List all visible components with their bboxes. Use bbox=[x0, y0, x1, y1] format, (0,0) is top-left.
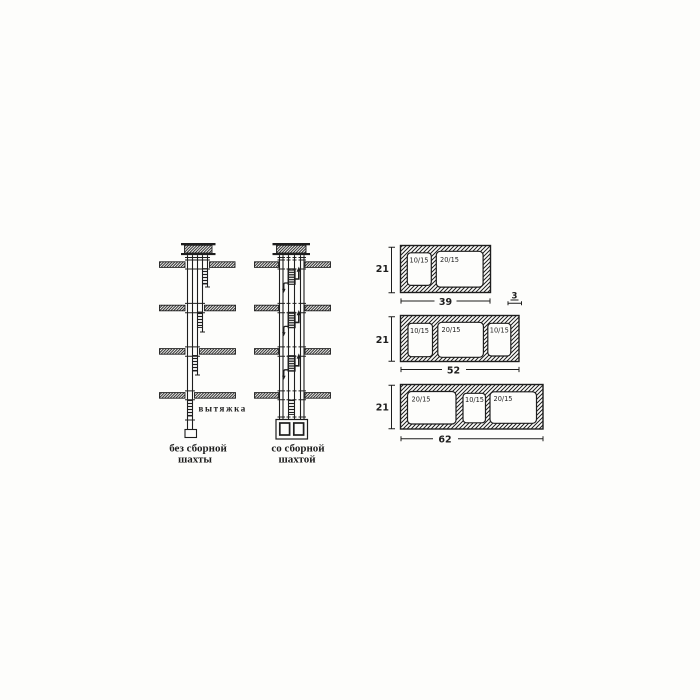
wall-thickness-dimension: 3 bbox=[508, 292, 522, 306]
width-dim-label: 39 bbox=[439, 297, 452, 308]
exhaust-outlet-box bbox=[185, 430, 197, 438]
cell-size-label: 20/15 bbox=[440, 256, 459, 264]
height-dim-label: 21 bbox=[376, 403, 389, 414]
height-dim-label: 21 bbox=[376, 264, 389, 275]
height-dimension bbox=[389, 385, 396, 428]
height-dimension bbox=[389, 317, 396, 361]
caption-without-line2: шахты bbox=[178, 454, 212, 466]
base-block-section bbox=[276, 420, 308, 440]
shaft-cap bbox=[273, 243, 311, 255]
ventilation-shaft-figure: вытяжка без сборной шахты bbox=[0, 0, 700, 700]
shaft-cap bbox=[181, 243, 216, 255]
cell-size-label: 20/15 bbox=[412, 396, 431, 404]
width-dimension bbox=[401, 436, 543, 441]
vent-block-section-2: 10/15 20/15 10/15 21 52 bbox=[376, 316, 519, 377]
shaft-section-with-collector bbox=[255, 243, 331, 439]
cell-size-label: 10/15 bbox=[410, 256, 429, 264]
exhaust-label: вытяжка bbox=[199, 404, 247, 414]
vent-block-section-3: 20/15 10/15 20/15 21 62 bbox=[376, 385, 543, 446]
caption-with-line2: шахтой bbox=[278, 454, 316, 466]
height-dimension bbox=[389, 247, 396, 292]
vent-block-section-1: 10/15 20/15 21 39 3 bbox=[376, 246, 522, 308]
width-dim-label: 52 bbox=[447, 366, 460, 377]
width-dim-label: 62 bbox=[438, 435, 451, 446]
height-dim-label: 21 bbox=[376, 335, 389, 346]
cell-size-label: 20/15 bbox=[442, 326, 461, 334]
cell-size-label: 20/15 bbox=[494, 395, 513, 403]
cell-size-label: 10/15 bbox=[490, 327, 509, 335]
cell-size-label: 10/15 bbox=[410, 327, 429, 335]
scanned-figure-page: вытяжка без сборной шахты bbox=[0, 0, 700, 700]
cell-size-label: 10/15 bbox=[465, 396, 484, 404]
satellite-channels bbox=[288, 269, 295, 371]
collector-grille bbox=[289, 400, 295, 415]
